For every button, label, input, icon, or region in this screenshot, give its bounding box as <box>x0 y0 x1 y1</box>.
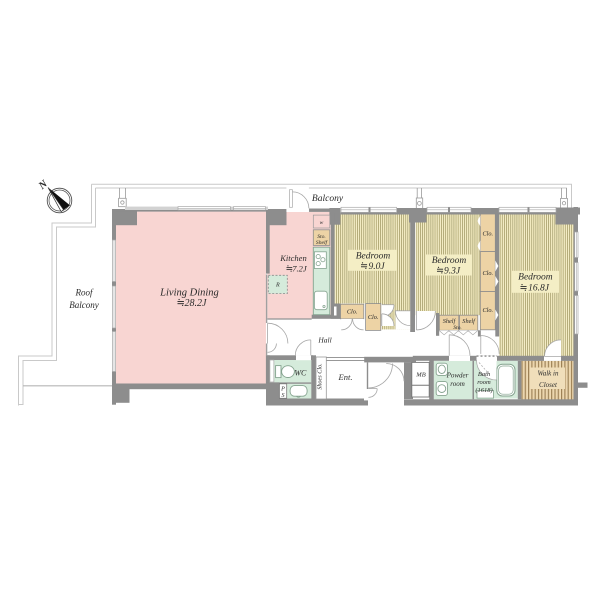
svg-text:S: S <box>282 393 285 399</box>
svg-text:Kitchen: Kitchen <box>279 253 306 263</box>
svg-text:Closet: Closet <box>539 381 558 389</box>
svg-text:room: room <box>477 379 491 386</box>
svg-text:P: P <box>280 387 285 393</box>
svg-text:room: room <box>450 380 465 388</box>
svg-text:(1618): (1618) <box>475 387 492 394</box>
svg-text:Powder: Powder <box>446 372 469 380</box>
svg-text:Bedroom: Bedroom <box>518 273 553 283</box>
svg-text:Hall: Hall <box>317 336 331 345</box>
svg-text:7.2J: 7.2J <box>292 264 308 274</box>
svg-text:Shelf: Shelf <box>316 239 329 246</box>
svg-text:Balcony: Balcony <box>312 194 344 204</box>
svg-text:9.3J: 9.3J <box>444 266 461 276</box>
svg-text:Roof: Roof <box>75 288 94 298</box>
svg-text:Shelf: Shelf <box>462 318 476 325</box>
svg-text:R: R <box>275 283 280 289</box>
svg-text:Clo.: Clo. <box>368 314 379 321</box>
svg-text:Sto.: Sto. <box>453 325 462 331</box>
svg-text:Bath: Bath <box>478 371 490 378</box>
svg-text:MB: MB <box>415 372 425 379</box>
svg-text:9.0J: 9.0J <box>368 262 385 272</box>
svg-text:Shoes Clo.: Shoes Clo. <box>317 363 324 389</box>
svg-text:Clo.: Clo. <box>482 270 493 277</box>
svg-text:w: w <box>320 220 324 226</box>
svg-text:Balcony: Balcony <box>69 300 99 310</box>
svg-text:Clo.: Clo. <box>482 231 493 238</box>
svg-text:Clo.: Clo. <box>482 307 493 314</box>
svg-text:Bedroom: Bedroom <box>432 256 467 266</box>
svg-text:16.8J: 16.8J <box>528 284 550 294</box>
svg-text:Sto.: Sto. <box>317 234 326 240</box>
svg-text:Walk in: Walk in <box>538 370 559 378</box>
svg-text:28.2J: 28.2J <box>185 298 208 309</box>
svg-text:WC: WC <box>294 368 307 377</box>
svg-text:Clo.: Clo. <box>347 309 358 316</box>
svg-text:Bedroom: Bedroom <box>356 252 391 262</box>
svg-text:Ent.: Ent. <box>338 372 353 382</box>
